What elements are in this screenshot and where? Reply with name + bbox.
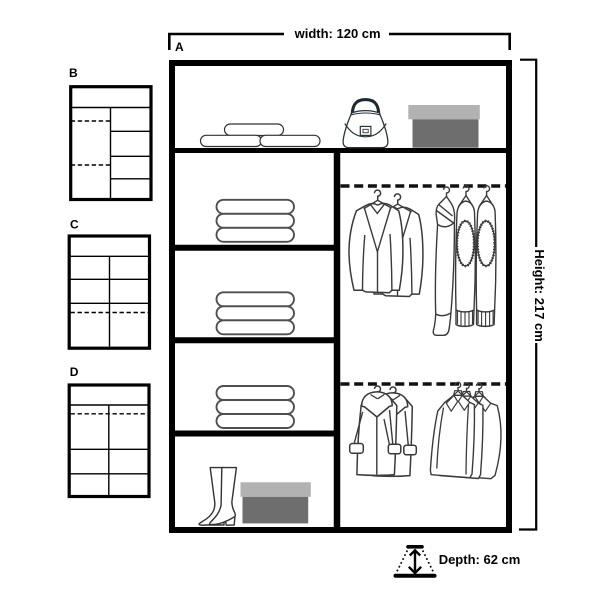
svg-text:width: 120 cm: width: 120 cm: [294, 26, 381, 41]
svg-text:C: C: [70, 217, 79, 231]
svg-text:B: B: [69, 66, 78, 80]
svg-text:D: D: [70, 365, 79, 379]
svg-text:A: A: [175, 40, 184, 54]
svg-text:Depth: 62 cm: Depth: 62 cm: [439, 552, 521, 567]
svg-text:Height: 217 cm: Height: 217 cm: [532, 249, 547, 341]
